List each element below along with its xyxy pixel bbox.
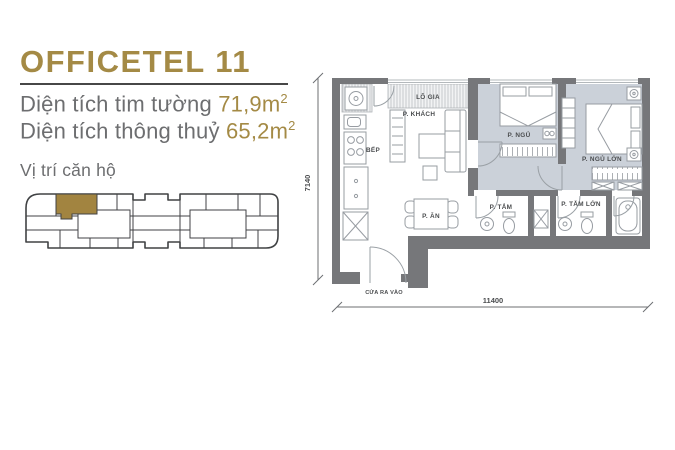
area-gross-value: 71,9m — [218, 91, 280, 116]
pillow — [631, 107, 640, 128]
ac-unit-icon — [627, 148, 641, 161]
windows — [388, 78, 638, 84]
toilet-icon — [582, 219, 593, 234]
area-gross-label: Diện tích tim tường — [20, 91, 218, 116]
room-label-master-bedroom: P. NGỦ LỚN — [582, 154, 622, 163]
washer-icon — [345, 87, 367, 110]
closet — [562, 98, 575, 148]
sofa — [445, 110, 466, 172]
room-label-master-bathroom: P. TẮM LỚN — [561, 199, 601, 208]
entrance-door-arc — [370, 247, 406, 283]
chair — [447, 201, 458, 213]
pillow — [529, 87, 552, 96]
area-net-label: Diện tích thông thuỷ — [20, 118, 226, 143]
toilet-tank — [503, 212, 515, 217]
bedroom-furniture — [500, 84, 556, 157]
area-gross-sup: 2 — [280, 91, 287, 106]
room-label-living: P. KHÁCH — [403, 109, 436, 118]
kitchen-counter — [344, 167, 368, 209]
dimension-height: 7140 — [303, 175, 312, 192]
entry-pillar — [408, 249, 428, 288]
chair — [447, 216, 458, 228]
toilet-icon — [504, 219, 515, 234]
wardrobe — [592, 167, 642, 180]
pillow — [503, 87, 526, 96]
floorplan-page: OFFICETEL 11 Diện tích tim tường 71,9m2 … — [0, 0, 675, 450]
bathtub-icon — [616, 198, 640, 234]
title-divider — [20, 83, 288, 85]
ac-unit-icon — [627, 87, 641, 100]
entrance-label: CỬA RA VÀO — [365, 289, 403, 296]
coffee-table — [419, 134, 445, 158]
stove-icon — [344, 132, 366, 164]
floor-plan: LÔ GIA P. KHÁCH BẾP P. NGỦ P. NGỦ LỚN P.… — [293, 58, 655, 320]
basin-icon — [481, 218, 494, 231]
unit-title: OFFICETEL 11 — [20, 44, 251, 80]
dimension-width: 11400 — [483, 296, 503, 305]
building-locator-diagram — [14, 186, 302, 278]
room-label-kitchen: BẾP — [366, 144, 380, 154]
core-right — [190, 210, 246, 238]
location-label: Vị trí căn hộ — [20, 160, 116, 181]
basin-icon — [559, 218, 572, 231]
side-table — [423, 166, 437, 180]
wardrobe — [500, 144, 556, 157]
area-net-value: 65,2m — [226, 118, 288, 143]
area-gross-line: Diện tích tim tường 71,9m2 — [20, 91, 288, 117]
room-label-bathroom: P. TẮM — [490, 202, 513, 211]
room-label-dining: P. ĂN — [422, 211, 440, 220]
kitchen-fixtures — [343, 87, 405, 240]
room-label-bedroom: P. NGỦ — [508, 130, 531, 139]
toilet-tank — [581, 212, 593, 217]
room-label-loggia: LÔ GIA — [416, 92, 440, 101]
living-room-furniture — [419, 110, 466, 180]
area-net-line: Diện tích thông thuỷ 65,2m2 — [20, 118, 296, 144]
